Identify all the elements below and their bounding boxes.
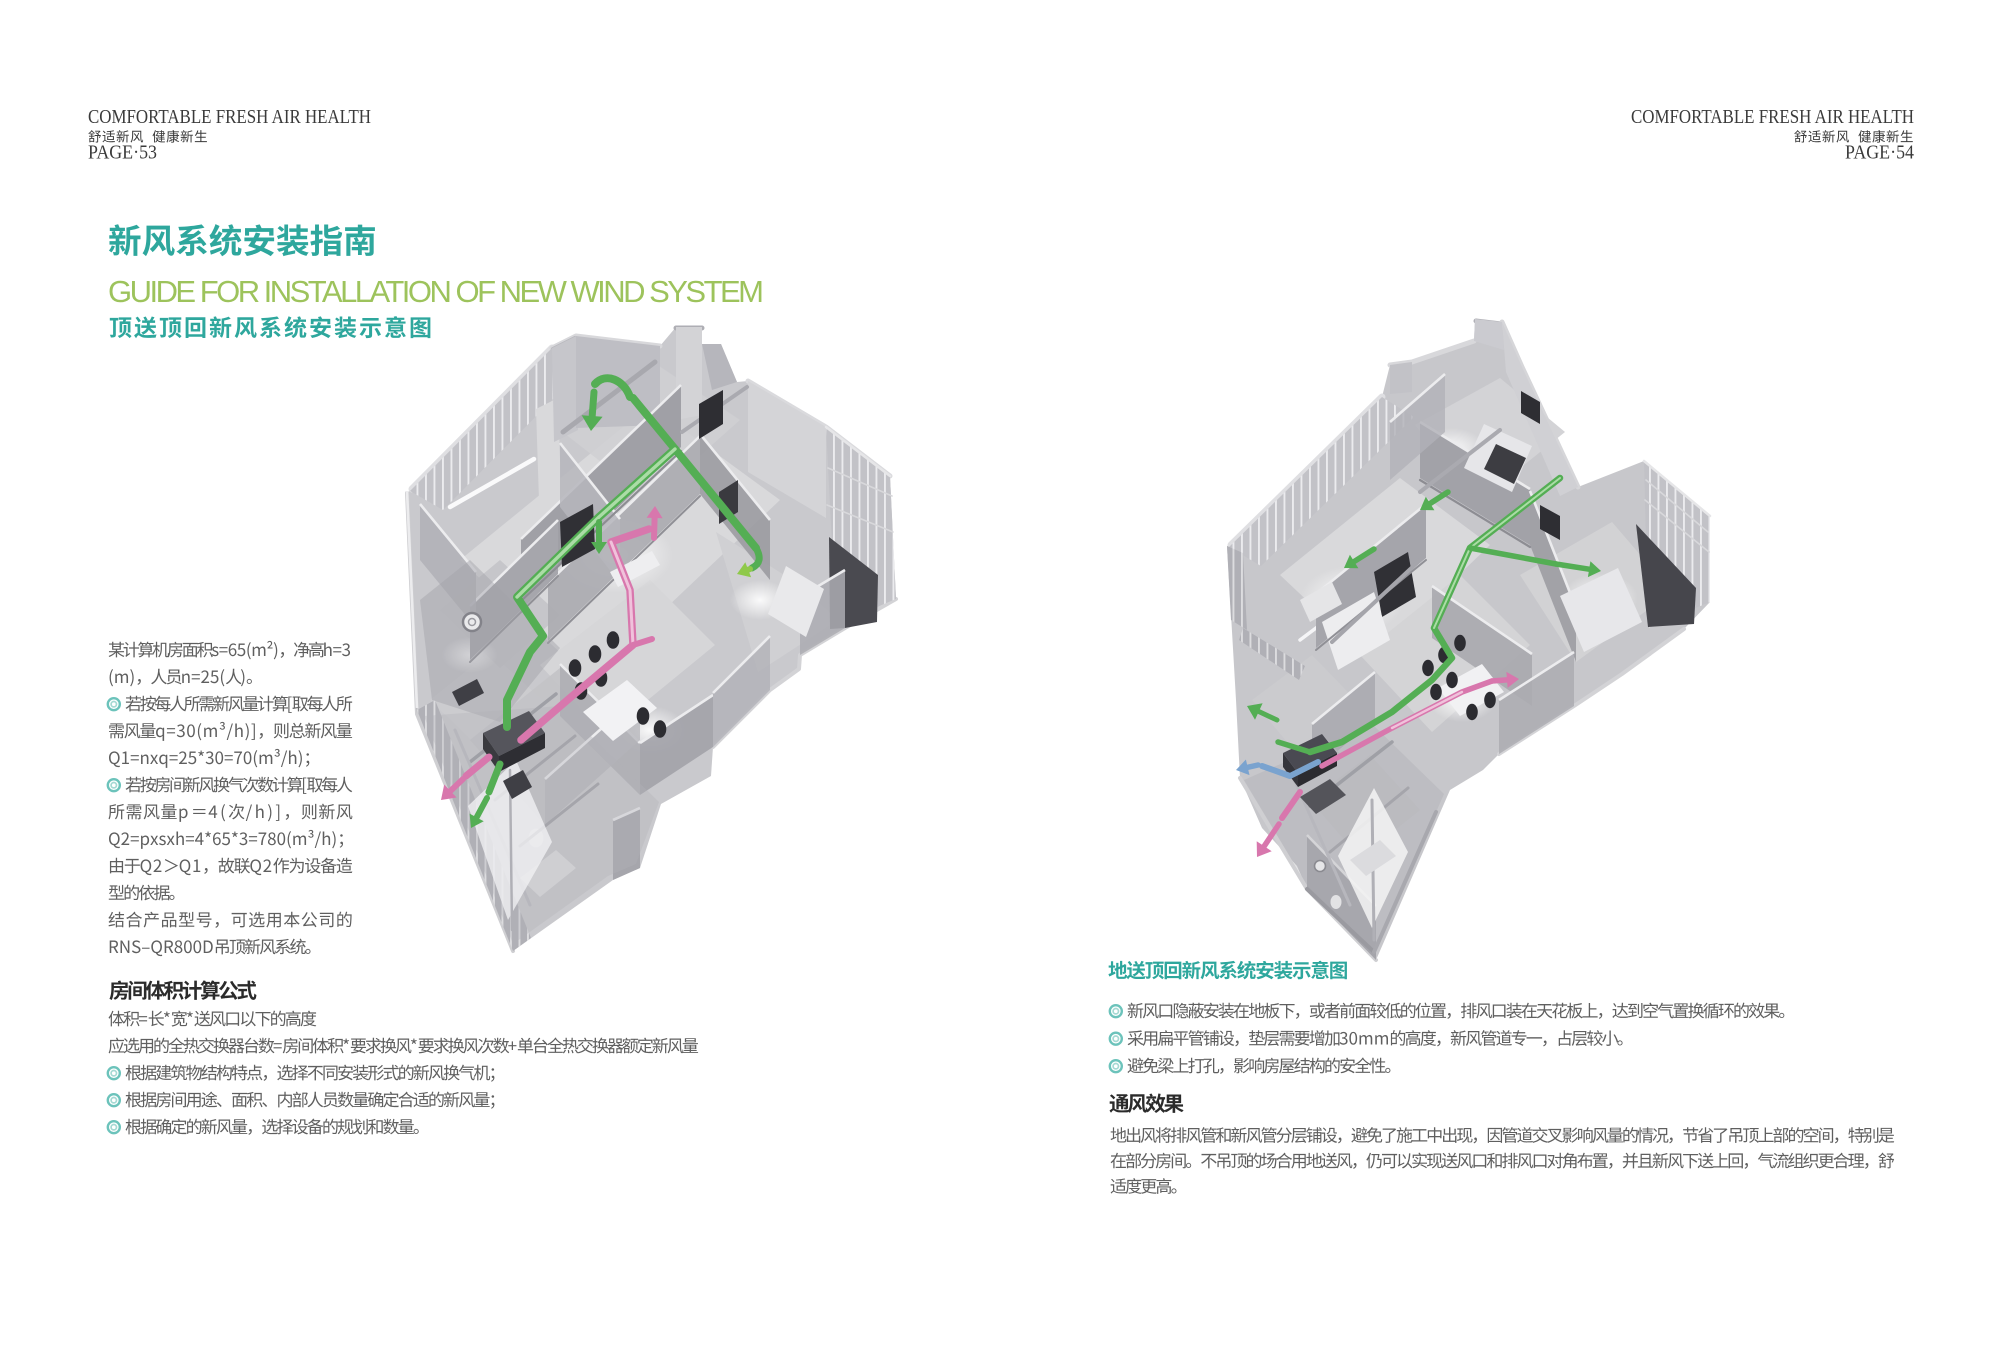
svg-text:PAGE·54: PAGE·54	[1845, 142, 1914, 164]
svg-text:COMFORTABLE FRESH AIR HEALTH: COMFORTABLE FRESH AIR HEALTH	[88, 106, 371, 128]
svg-text:GUIDE FOR INSTALLATION OF NEW: GUIDE FOR INSTALLATION OF NEW WIND SYSTE…	[108, 274, 764, 309]
svg-text:PAGE·53: PAGE·53	[88, 142, 157, 164]
svg-text:COMFORTABLE FRESH AIR HEALTH: COMFORTABLE FRESH AIR HEALTH	[1631, 106, 1914, 128]
